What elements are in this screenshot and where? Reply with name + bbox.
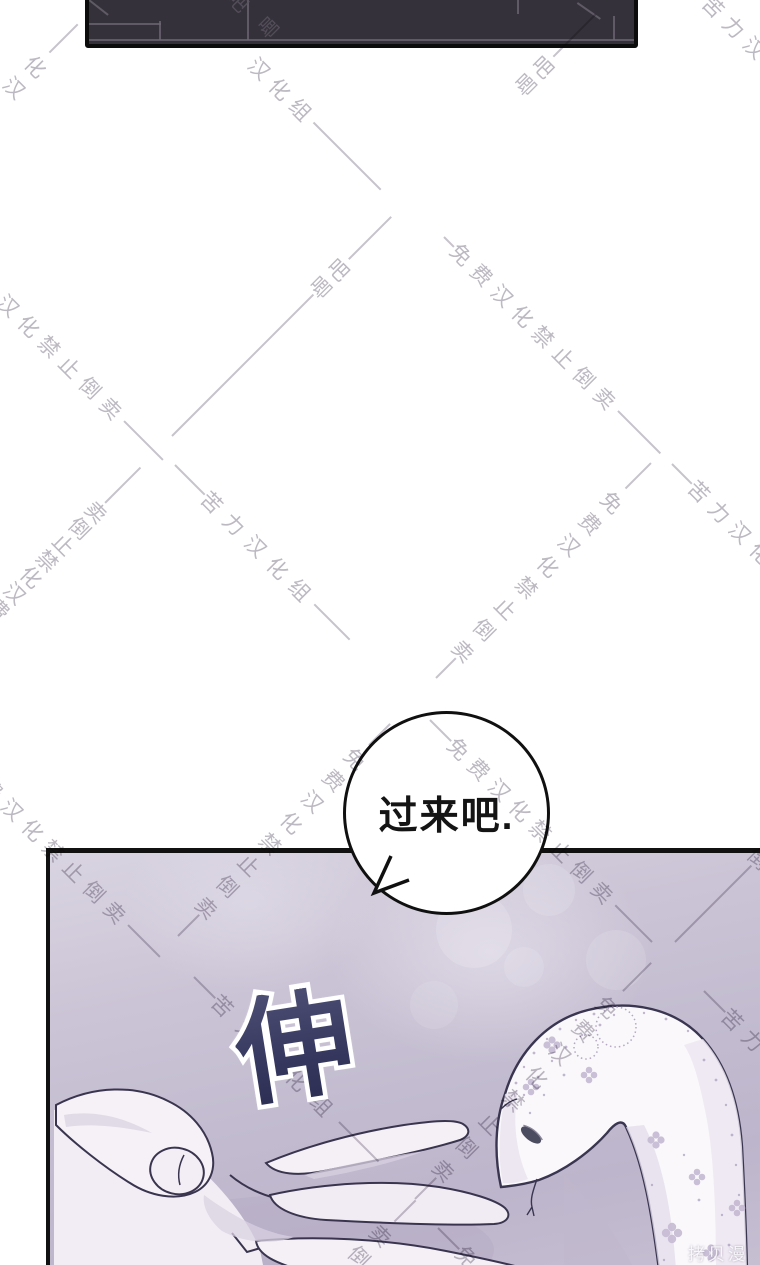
watermark-run: 苦力汉化组 (164, 454, 360, 650)
watermark-line (105, 467, 141, 503)
watermark-run: 苦力汉化组 (695, 0, 760, 169)
watermark-text: 免费汉化禁止倒卖 (0, 246, 135, 431)
watermark-char: 倒 (62, 510, 98, 546)
watermark-char: 汉 (551, 527, 587, 563)
watermark-char: 汉 (0, 70, 32, 106)
watermark-char: 化 (18, 48, 54, 84)
tile-line (613, 16, 615, 40)
watermark-line (124, 421, 164, 461)
watermark-run: 卖倒止禁化汉费免 (425, 452, 661, 688)
watermark-char: 化 (530, 548, 566, 584)
tile-line (89, 23, 161, 25)
watermark-line (625, 463, 652, 490)
watermark-char: 免 (594, 484, 630, 520)
watermark-text: 唧吧 (507, 46, 564, 103)
speech-bubble-text: 过来吧. (343, 711, 550, 915)
tile-line (89, 39, 638, 41)
watermark-line (49, 24, 78, 53)
watermark-char: 唧 (507, 67, 543, 103)
tile-line (159, 21, 161, 40)
watermark-run: 免费汉化禁止倒卖 (0, 246, 174, 470)
watermark-char: 止 (46, 526, 82, 562)
watermark-char: 倒 (466, 612, 502, 648)
watermark-text: 苦力汉化组 (681, 473, 760, 597)
watermark-run: 免费汉化禁止倒卖 (433, 226, 671, 464)
watermark-line (174, 464, 205, 495)
watermark-char: 费 (0, 591, 17, 627)
watermark-text: 唧吧 (303, 249, 360, 306)
watermark-text: 苦力汉化组 (695, 0, 760, 112)
watermark-line (314, 604, 350, 640)
watermark-char: 卖 (445, 633, 481, 669)
watermark-char: 禁 (29, 542, 65, 578)
watermark-line (171, 294, 313, 436)
tile-line (87, 0, 108, 15)
watermark-char: 费 (572, 505, 608, 541)
watermark-line (313, 122, 381, 190)
watermark-text: 卖倒止禁化汉费免 (445, 478, 636, 669)
watermark-char: 汉 (295, 783, 331, 819)
watermark-line (348, 216, 391, 259)
snake-illustration (496, 1006, 747, 1265)
watermark-run: 汉化 (0, 14, 88, 106)
top-panel: 吧 唧 (85, 0, 638, 48)
watermark-run: 苦力汉化组 (661, 453, 760, 639)
watermark-char: 止 (488, 590, 524, 626)
watermark-line (671, 463, 692, 484)
watermark-char: 卖 (78, 494, 114, 530)
middle-finger (270, 1183, 508, 1225)
watermark-char: 化 (13, 559, 49, 595)
watermark-char: 吧 (320, 251, 356, 287)
watermark-text: 汉化 (0, 42, 60, 106)
watermark-char: 汉 (0, 575, 33, 611)
watermark-char: 禁 (509, 569, 545, 605)
site-watermark: 拷贝漫画 (688, 1240, 760, 1265)
watermark-run: 汉化组 (241, 50, 391, 200)
watermark-line (435, 658, 456, 679)
watermark-char: 化 (273, 804, 309, 840)
watermark-text: 免费汉化禁止倒卖 (0, 492, 116, 643)
sfx-text-fill: 伸 (228, 982, 361, 1115)
watermark-char: 唧 (303, 269, 339, 305)
tile-line (577, 2, 601, 19)
watermark-char: 吧 (525, 49, 561, 85)
watermark-run: 唧吧 (161, 206, 401, 446)
watermark-line (443, 236, 454, 247)
faint-watermark-glyph: 吧 (222, 0, 257, 18)
comic-page: 吧 唧 (0, 0, 760, 1265)
tile-line (517, 0, 519, 14)
watermark-line (617, 410, 660, 453)
snake-tongue (527, 1179, 537, 1216)
watermark-run: 免费汉化禁止倒卖 (0, 457, 151, 644)
watermark-text: 苦力汉化组 (194, 484, 325, 615)
watermark-text: 免费汉化禁止倒卖 (443, 236, 628, 421)
watermark-text: 汉化组 (241, 50, 324, 133)
